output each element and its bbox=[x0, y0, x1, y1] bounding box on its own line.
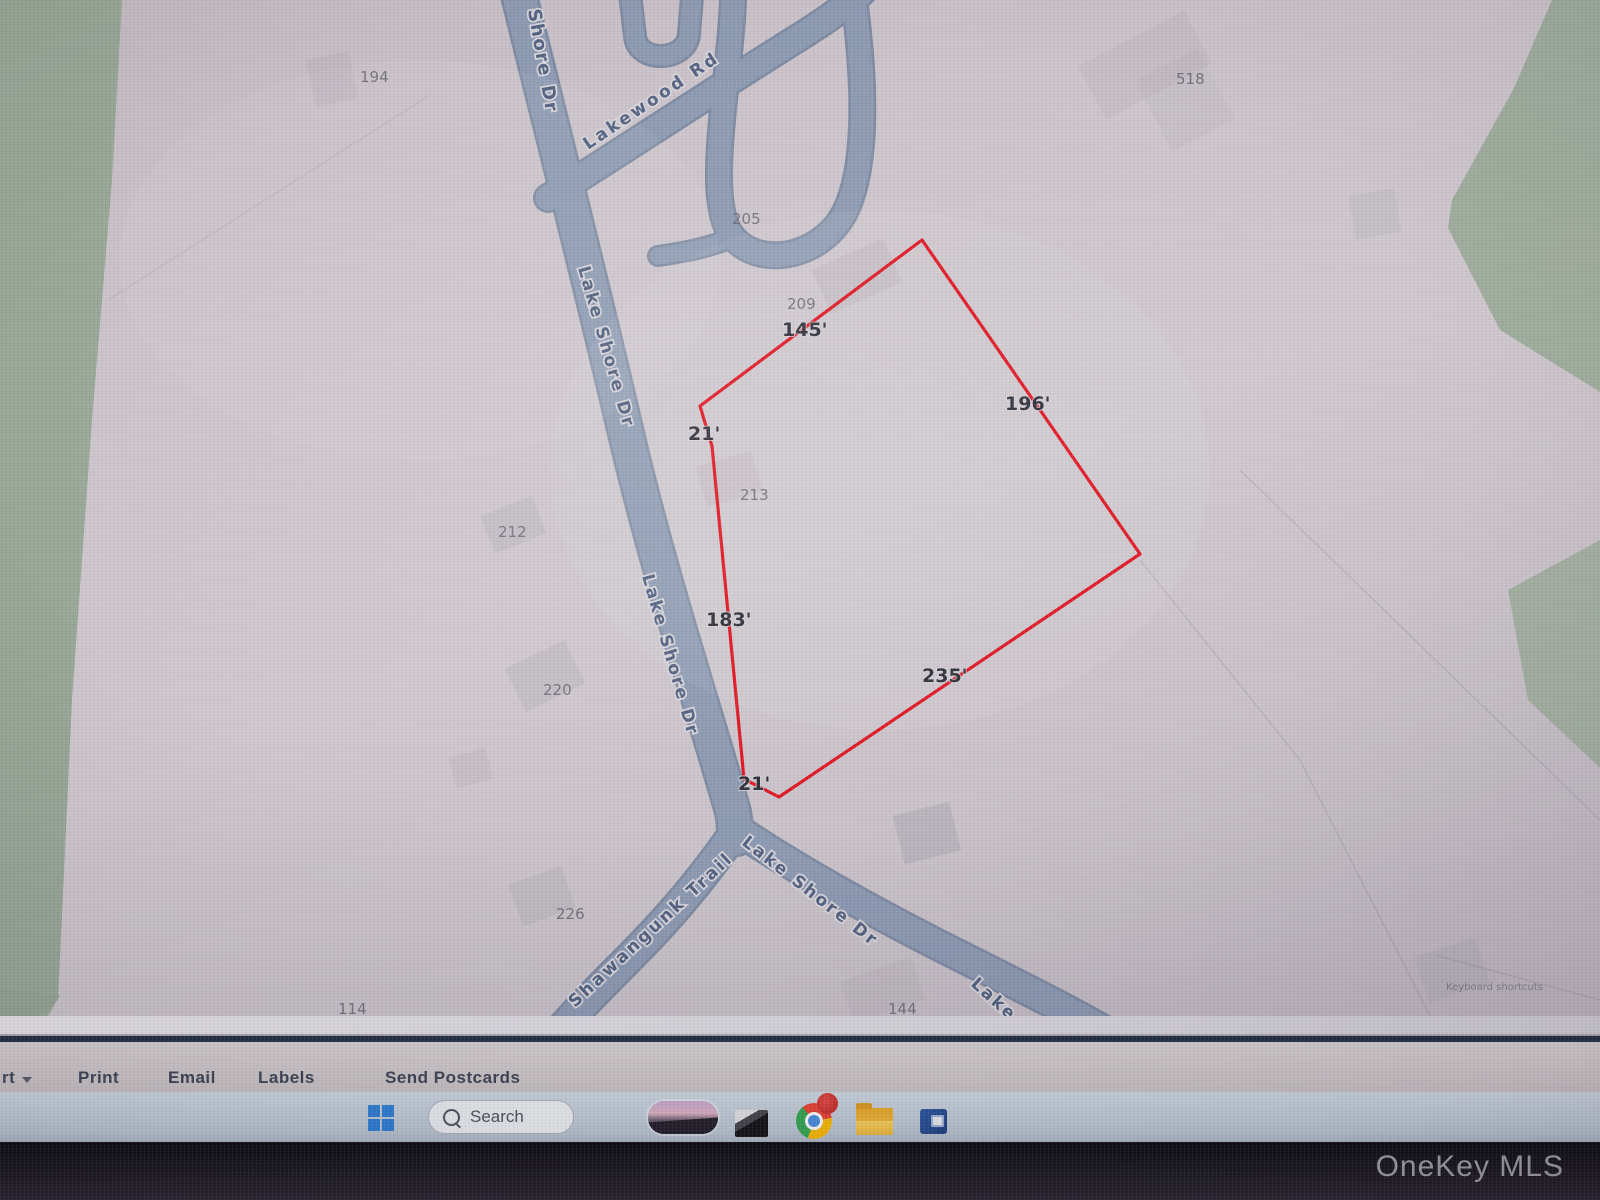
road-label-shawangunk-trail: Shawangunk Trail bbox=[565, 848, 738, 1011]
lot-number-212: 212 bbox=[498, 523, 527, 541]
dimension-21-lower: 21' bbox=[738, 773, 770, 795]
search-label: Search bbox=[470, 1107, 524, 1127]
labels-button[interactable]: Labels bbox=[258, 1068, 315, 1088]
window-edge-line bbox=[0, 1034, 1600, 1042]
taskbar-search-box[interactable]: Search bbox=[428, 1100, 574, 1134]
screenshot-thumbnail-icon[interactable] bbox=[735, 1110, 768, 1137]
chrome-notification-badge bbox=[817, 1093, 838, 1114]
send-postcards-button[interactable]: Send Postcards bbox=[385, 1068, 521, 1088]
windows-start-button[interactable] bbox=[368, 1105, 394, 1131]
map-bottom-strip bbox=[0, 1016, 1600, 1034]
monitor-bezel: OneKey MLS bbox=[0, 1142, 1600, 1200]
map-canvas: Shore Dr Lake Shore Dr Lake Shore Dr Lak… bbox=[0, 0, 1600, 1016]
monitor-photo: Shore Dr Lake Shore Dr Lake Shore Dr Lak… bbox=[0, 0, 1600, 1200]
lot-number-226: 226 bbox=[556, 905, 585, 923]
parcel-map[interactable]: Shore Dr Lake Shore Dr Lake Shore Dr Lak… bbox=[0, 0, 1600, 1016]
lot-number-205: 205 bbox=[732, 210, 761, 228]
print-button[interactable]: Print bbox=[78, 1068, 119, 1088]
windows-logo-square bbox=[368, 1119, 380, 1131]
dimension-21-upper: 21' bbox=[688, 423, 720, 445]
dropdown-caret-icon bbox=[22, 1077, 32, 1083]
email-button[interactable]: Email bbox=[168, 1068, 216, 1088]
lot-number-194: 194 bbox=[360, 68, 389, 86]
lot-number-213: 213 bbox=[740, 486, 769, 504]
windows-logo-square bbox=[368, 1105, 380, 1117]
windows-logo-square bbox=[382, 1119, 394, 1131]
dimension-235: 235' bbox=[922, 665, 967, 687]
windows-logo-square bbox=[382, 1105, 394, 1117]
lot-number-209: 209 bbox=[787, 295, 816, 313]
dimension-183: 183' bbox=[706, 609, 751, 631]
dimension-145: 145' bbox=[782, 319, 827, 341]
search-icon bbox=[443, 1109, 460, 1126]
windows-taskbar: Search bbox=[0, 1092, 1600, 1142]
export-menu-partial[interactable]: rt bbox=[2, 1068, 32, 1088]
lot-number-114: 114 bbox=[338, 1000, 367, 1016]
export-menu-label: rt bbox=[2, 1068, 15, 1087]
onekey-mls-watermark: OneKey MLS bbox=[1376, 1150, 1564, 1184]
widgets-weather-icon[interactable] bbox=[648, 1101, 718, 1134]
lot-number-220: 220 bbox=[543, 681, 572, 699]
mail-app-icon[interactable] bbox=[920, 1109, 947, 1134]
mls-action-toolbar: rt Print Email Labels Send Postcards bbox=[0, 1042, 1600, 1092]
lot-number-144: 144 bbox=[888, 1000, 917, 1016]
lot-number-518: 518 bbox=[1176, 70, 1205, 88]
map-attribution: Keyboard shortcuts bbox=[1446, 982, 1543, 993]
file-explorer-icon[interactable] bbox=[856, 1108, 893, 1135]
dimension-196: 196' bbox=[1005, 393, 1050, 415]
